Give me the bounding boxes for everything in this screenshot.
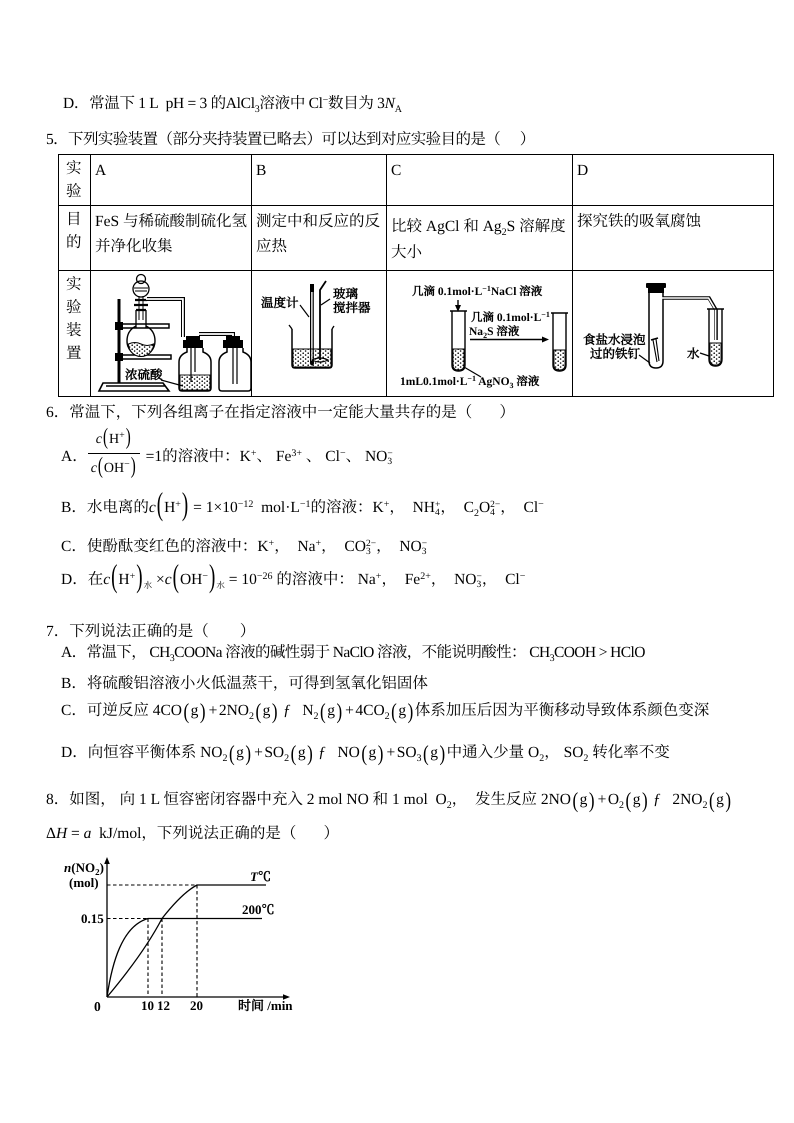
- svg-text:水: 水: [687, 344, 700, 362]
- svg-text:过的铁钉: 过的铁钉: [590, 344, 641, 362]
- svg-text:(mol): (mol): [69, 872, 99, 891]
- svg-text:1mL0.1mol·L−1 AgNO3 溶液: 1mL0.1mol·L−1 AgNO3 溶液: [400, 373, 540, 391]
- svg-text:10: 10: [141, 995, 154, 1014]
- svg-text:浓硫酸: 浓硫酸: [125, 365, 163, 383]
- svg-text:12: 12: [157, 995, 170, 1014]
- svg-text:T℃: T℃: [250, 866, 271, 885]
- svg-text:Na2S 溶液: Na2S 溶液: [469, 323, 520, 341]
- svg-text:0.15: 0.15: [81, 908, 104, 927]
- svg-text:时间 /min: 时间 /min: [238, 995, 293, 1014]
- svg-text:0: 0: [94, 995, 101, 1015]
- svg-text:200℃: 200℃: [242, 899, 275, 918]
- svg-text:搅拌器: 搅拌器: [333, 298, 371, 316]
- svg-text:20: 20: [190, 995, 203, 1014]
- svg-text:温度计: 温度计: [261, 293, 299, 311]
- svg-text:几滴 0.1mol·L−1NaCl 溶液: 几滴 0.1mol·L−1NaCl 溶液: [412, 283, 543, 299]
